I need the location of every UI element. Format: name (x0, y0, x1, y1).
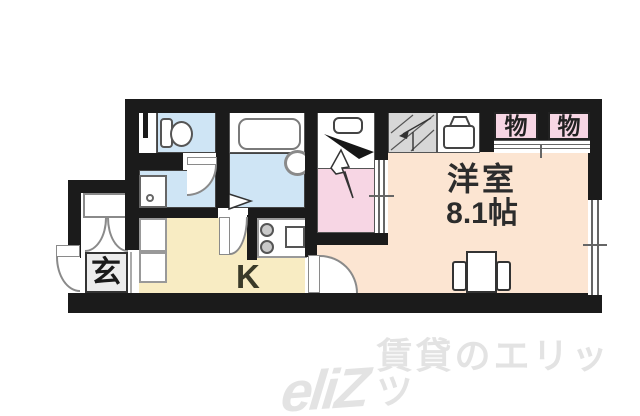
main-room-name-label: 洋室 (412, 163, 552, 195)
laundry-zigzag-icon (327, 147, 359, 201)
wall-kitchen-stub (247, 215, 257, 260)
wall-washroom-bathroom (216, 112, 229, 208)
wall-pipe-duct (143, 113, 148, 138)
laundry-sliding-tick (369, 195, 394, 197)
storage-closet-right: 物 (548, 112, 590, 140)
closet-sliding-tick (540, 144, 542, 158)
kitchen-label: K (236, 260, 260, 293)
refrigerator-space-upper (139, 218, 167, 252)
burner-icon-1 (260, 223, 274, 237)
toilet-bowl-icon (170, 121, 193, 147)
stairs-area (388, 112, 437, 153)
stairs-icon (389, 113, 436, 152)
bathtub-icon (238, 118, 301, 150)
shelf-box (437, 112, 480, 153)
watermark-logo: eliZ (279, 359, 370, 416)
wall-right-upper (588, 99, 602, 200)
floorplan-canvas: 物 物 玄 K 洋室 8.1帖 eliZ 賃貸のエリッツ (0, 0, 640, 416)
kitchen-sink-icon (285, 226, 305, 248)
closet-sliding-track-2 (494, 148, 590, 149)
wall-storage-gap (538, 112, 548, 140)
chair-left-icon (452, 261, 467, 291)
wall-bottom (68, 293, 602, 313)
main-room-door-leaf (308, 255, 320, 293)
window-right-line-1 (591, 200, 593, 295)
entrance-closet-box (83, 193, 127, 218)
watermark: eliZ 賃貸のエリッツ (282, 338, 640, 416)
wall-left-main (125, 99, 139, 250)
wall-below-laundry (305, 233, 388, 245)
window-right-line-2 (597, 200, 599, 295)
wall-top (125, 99, 602, 113)
window-right-tick (583, 244, 607, 246)
toilet-room-anteroom (139, 112, 157, 153)
watermark-text: 賃貸のエリッツ (376, 338, 640, 416)
burner-icon-2 (260, 240, 274, 254)
vanity-drain-icon (146, 194, 154, 202)
wall-toilet-bottom (139, 153, 183, 170)
wall-shelf-storage (480, 112, 494, 152)
genkan-label: 玄 (91, 258, 121, 288)
wall-laundry-main (375, 99, 388, 160)
closet-sliding-track-1 (494, 144, 590, 145)
storage-closet-left: 物 (494, 112, 538, 140)
wall-bath-laundry (305, 99, 317, 240)
toilet-door-leaf (187, 157, 217, 165)
table-icon (466, 251, 497, 293)
storage-right-label: 物 (558, 115, 581, 138)
entrance-threshold (130, 252, 132, 293)
chair-right-icon (496, 261, 511, 291)
shelf-icon (438, 113, 479, 152)
entrance-door-leaf (56, 245, 80, 257)
main-room-size-label: 8.1帖 (412, 199, 552, 229)
entrance-door-swing (56, 257, 80, 292)
refrigerator-space-lower (139, 252, 167, 283)
washroom-door-leaf (219, 217, 230, 255)
storage-left-label: 物 (505, 115, 528, 138)
wall-below-washroom (125, 208, 218, 218)
main-room-label-block: 洋室 8.1帖 (412, 163, 552, 229)
vanity-icon (139, 175, 167, 208)
closet-sliding-door (494, 140, 590, 153)
